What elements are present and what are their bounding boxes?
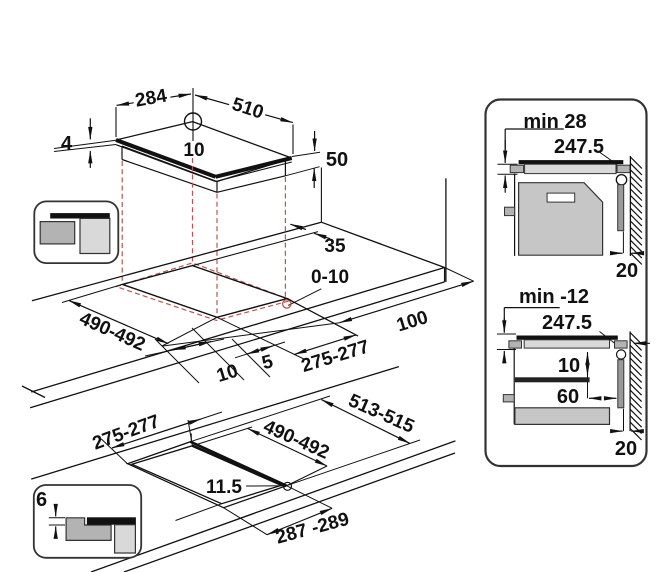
svg-text:247.5: 247.5 xyxy=(554,136,604,158)
svg-text:6: 6 xyxy=(36,489,47,511)
svg-text:5: 5 xyxy=(260,351,276,374)
svg-text:10: 10 xyxy=(558,355,580,377)
svg-text:20: 20 xyxy=(616,260,638,282)
svg-text:35: 35 xyxy=(324,236,346,257)
svg-text:60: 60 xyxy=(557,386,579,408)
svg-text:11.5: 11.5 xyxy=(206,477,242,498)
svg-text:513-515: 513-515 xyxy=(345,390,418,438)
svg-text:275-277: 275-277 xyxy=(299,337,372,377)
svg-text:50: 50 xyxy=(326,149,348,171)
svg-text:10: 10 xyxy=(214,361,240,387)
svg-text:490-492: 490-492 xyxy=(260,416,332,464)
svg-text:4: 4 xyxy=(61,133,73,155)
svg-text:0-10: 0-10 xyxy=(311,267,349,288)
svg-text:510: 510 xyxy=(229,94,266,124)
svg-text:275-277: 275-277 xyxy=(90,411,163,455)
svg-text:100: 100 xyxy=(394,307,430,336)
svg-text:min 28: min 28 xyxy=(523,111,586,133)
svg-text:490-492: 490-492 xyxy=(76,308,148,356)
svg-text:247.5: 247.5 xyxy=(542,312,592,334)
svg-text:284: 284 xyxy=(134,85,169,111)
svg-text:20: 20 xyxy=(615,438,637,460)
svg-text:287 -289: 287 -289 xyxy=(274,509,352,549)
svg-text:min -12: min -12 xyxy=(519,286,589,308)
svg-text:10: 10 xyxy=(183,140,204,161)
